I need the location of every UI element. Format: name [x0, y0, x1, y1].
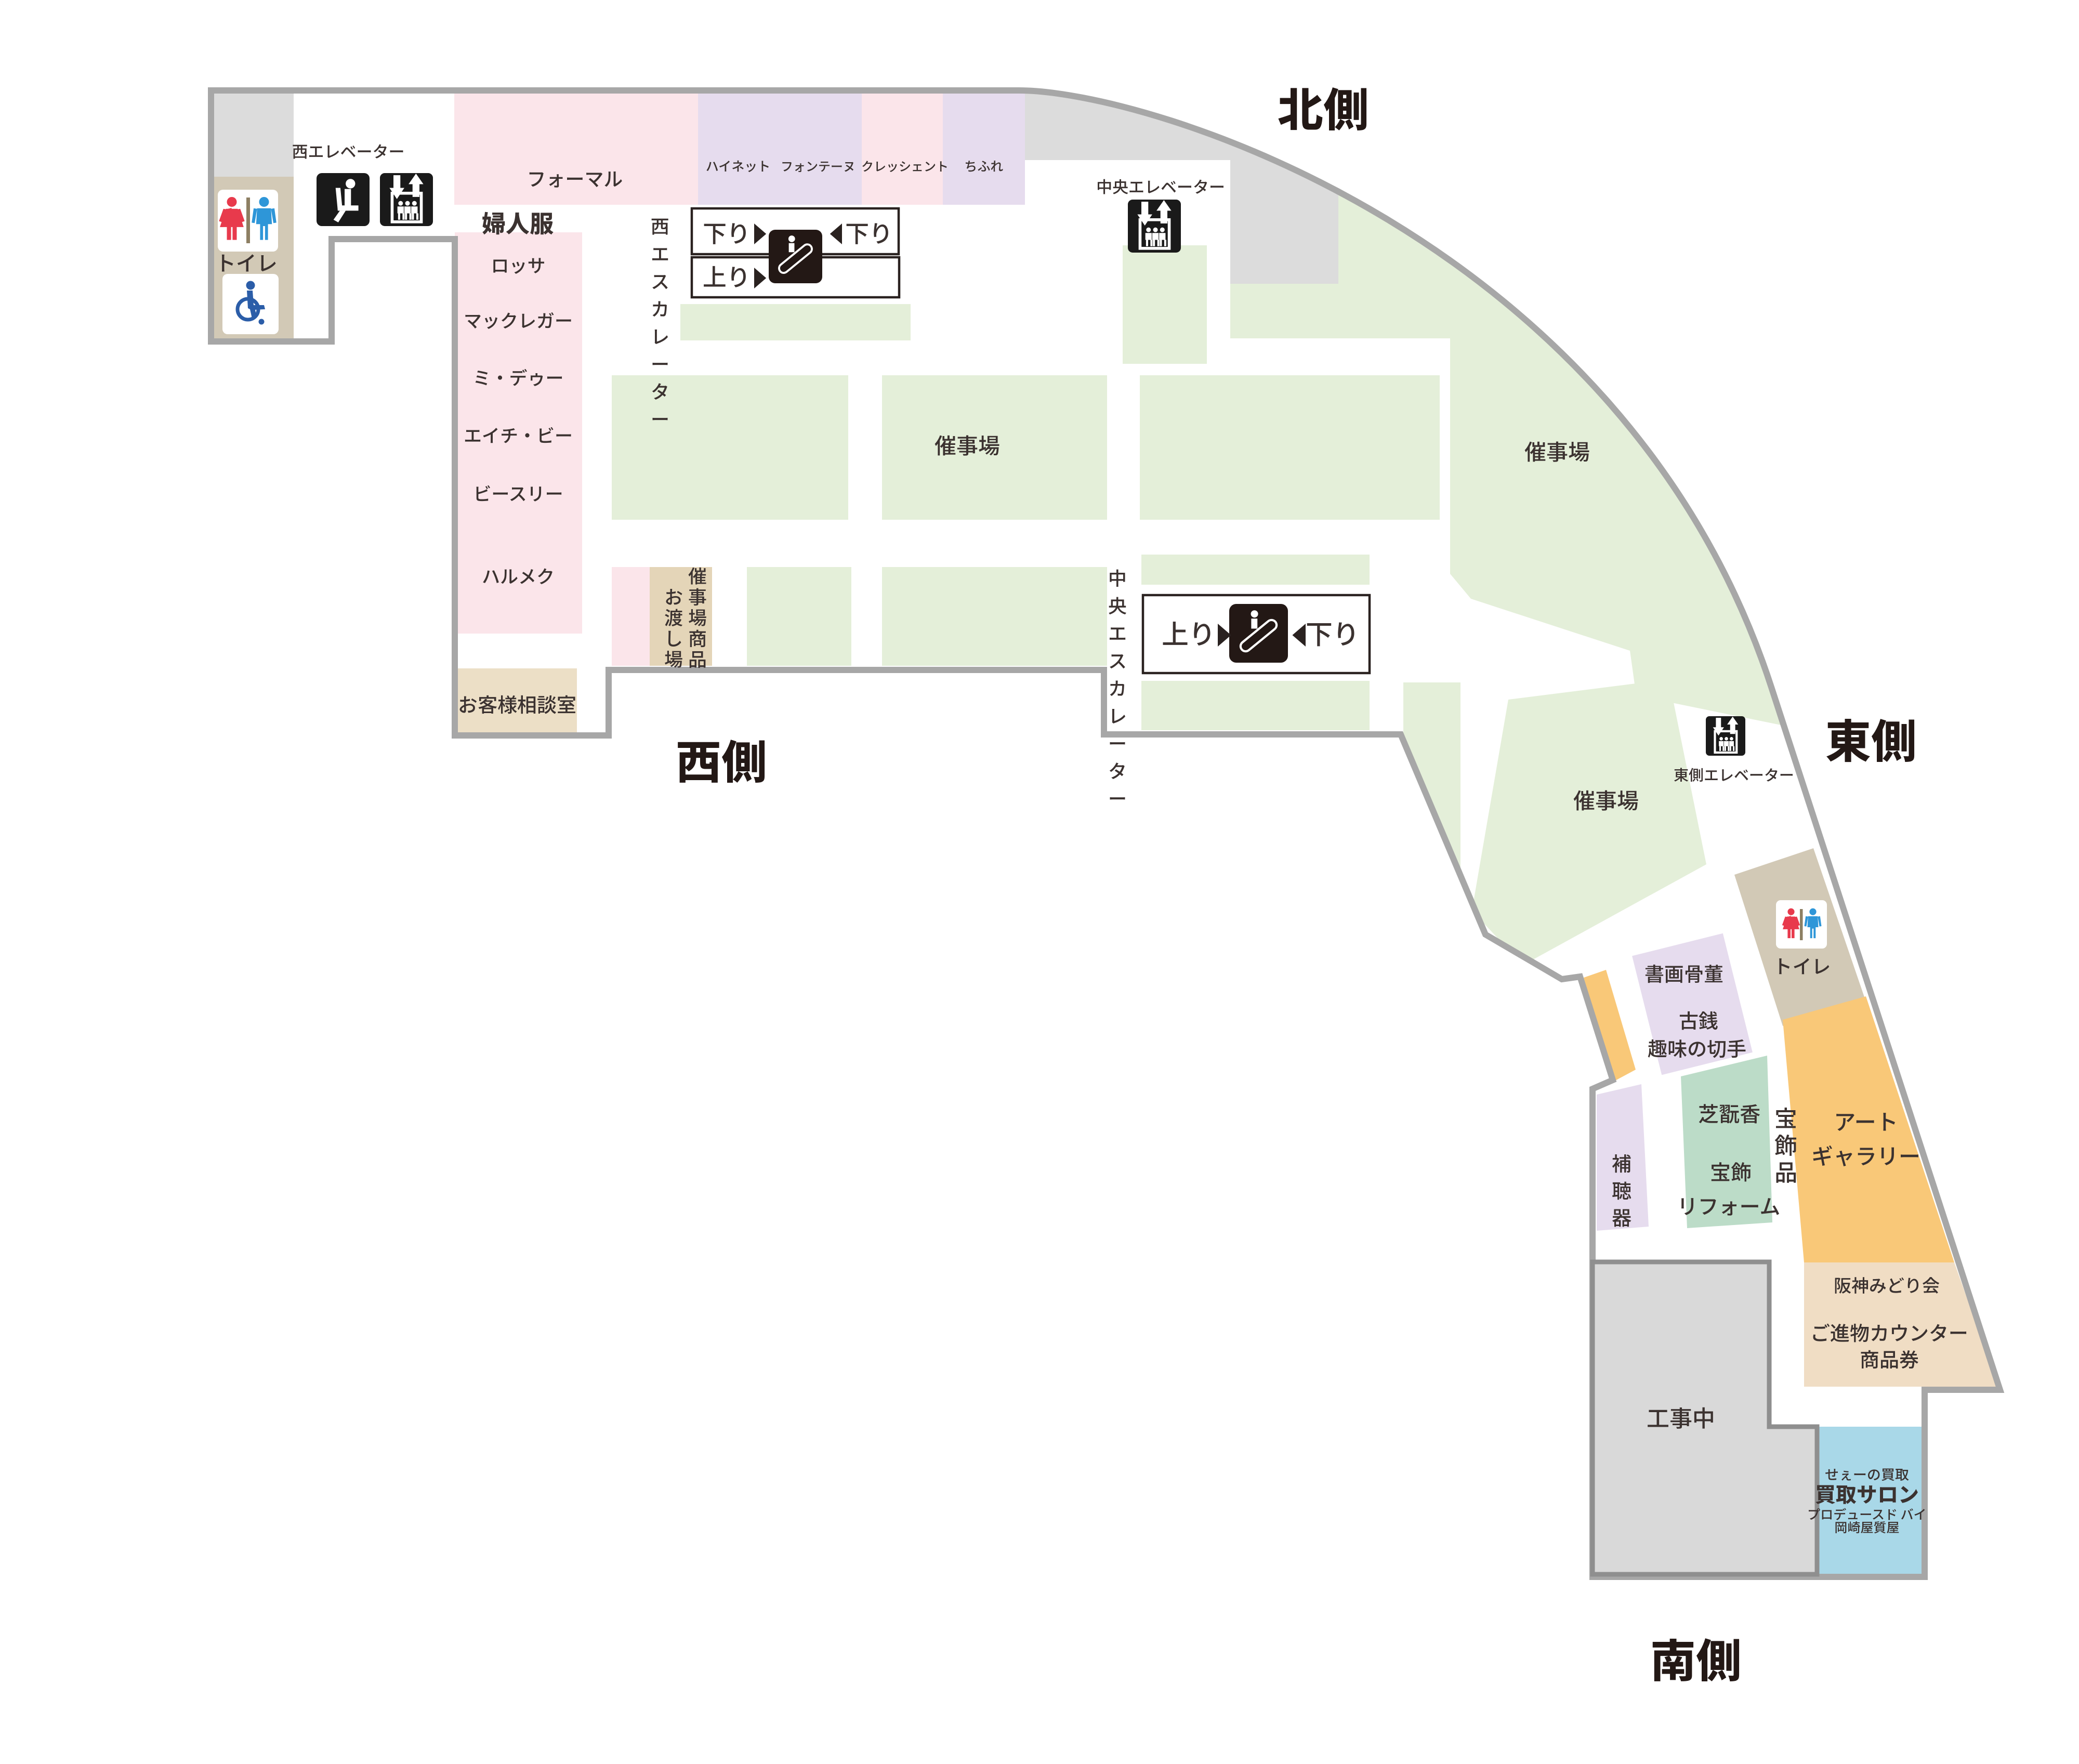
svg-text:下り: 下り — [703, 215, 751, 249]
svg-text:アート: アート — [1834, 1105, 1898, 1137]
svg-text:カ: カ — [651, 295, 669, 322]
svg-text:下り: 下り — [845, 215, 893, 249]
svg-text:品: 品 — [688, 645, 707, 672]
svg-text:ちふれ: ちふれ — [964, 156, 1003, 175]
svg-text:商品券: 商品券 — [1860, 1344, 1919, 1373]
svg-text:東側: 東側 — [1825, 705, 1917, 771]
svg-text:ー: ー — [651, 350, 669, 377]
svg-text:上り: 上り — [1162, 613, 1216, 652]
svg-text:ギャラリー: ギャラリー — [1811, 1139, 1920, 1171]
svg-text:婦人服: 婦人服 — [482, 205, 554, 240]
svg-text:書画骨董: 書画骨董 — [1644, 958, 1723, 987]
svg-text:お客様相談室: お客様相談室 — [458, 689, 576, 718]
svg-text:西側: 西側 — [676, 726, 767, 792]
svg-text:芝翫香: 芝翫香 — [1698, 1098, 1760, 1128]
svg-text:ス: ス — [651, 267, 669, 294]
svg-text:レ: レ — [651, 322, 669, 349]
svg-text:催事場: 催事場 — [1573, 784, 1639, 815]
svg-text:古銭: 古銭 — [1679, 1005, 1718, 1034]
svg-text:南側: 南側 — [1650, 1625, 1742, 1691]
svg-text:フォーマル: フォーマル — [527, 164, 623, 192]
svg-text:カ: カ — [1108, 674, 1127, 701]
svg-text:マックレガー: マックレガー — [464, 307, 573, 333]
svg-text:リフォーム: リフォーム — [1677, 1190, 1781, 1220]
svg-text:場: 場 — [664, 645, 683, 672]
svg-text:トイレ: トイレ — [1773, 951, 1831, 979]
svg-text:工事中: 工事中 — [1647, 1400, 1715, 1433]
svg-text:岡崎屋質屋: 岡崎屋質屋 — [1834, 1518, 1899, 1536]
svg-text:補: 補 — [1612, 1148, 1631, 1177]
svg-text:阪神みどり会: 阪神みどり会 — [1834, 1272, 1940, 1297]
svg-text:トイレ: トイレ — [215, 247, 278, 277]
svg-text:央: 央 — [1108, 591, 1127, 618]
svg-text:西: 西 — [651, 212, 669, 239]
svg-text:フォンテーヌ: フォンテーヌ — [781, 156, 856, 175]
svg-text:器: 器 — [1612, 1202, 1631, 1231]
svg-text:上り: 上り — [703, 259, 751, 293]
svg-text:宝飾: 宝飾 — [1710, 1156, 1752, 1186]
svg-text:エ: エ — [1108, 619, 1127, 646]
svg-text:エイチ・ビー: エイチ・ビー — [464, 422, 573, 448]
svg-text:ス: ス — [1108, 647, 1127, 674]
svg-text:催事場: 催事場 — [935, 429, 1000, 460]
svg-text:レ: レ — [1108, 702, 1127, 729]
svg-text:品: 品 — [1774, 1154, 1797, 1188]
svg-text:ビースリー: ビースリー — [473, 480, 563, 506]
svg-text:ミ・デゥー: ミ・デゥー — [472, 364, 563, 390]
svg-text:東側エレベーター: 東側エレベーター — [1674, 763, 1794, 785]
svg-text:買取サロン: 買取サロン — [1815, 1478, 1919, 1508]
svg-text:ハルメク: ハルメク — [482, 562, 555, 589]
svg-text:中央エレベーター: 中央エレベーター — [1096, 174, 1225, 198]
svg-text:ご進物カウンター: ご進物カウンター — [1810, 1318, 1968, 1346]
svg-text:ハイネット: ハイネット — [706, 156, 771, 175]
svg-text:タ: タ — [651, 377, 669, 404]
svg-text:西エレベーター: 西エレベーター — [292, 139, 405, 162]
svg-text:中: 中 — [1108, 564, 1127, 591]
svg-text:ー: ー — [1108, 784, 1127, 811]
svg-text:ー: ー — [1108, 729, 1127, 756]
svg-text:北側: 北側 — [1278, 74, 1369, 140]
svg-text:タ: タ — [1108, 757, 1127, 784]
svg-text:趣味の切手: 趣味の切手 — [1648, 1033, 1746, 1062]
svg-text:エ: エ — [651, 240, 669, 267]
svg-text:クレッシェント: クレッシェント — [861, 156, 949, 175]
svg-text:ロッサ: ロッサ — [491, 252, 545, 278]
svg-text:ー: ー — [651, 405, 669, 432]
svg-text:催事場: 催事場 — [1524, 435, 1590, 467]
svg-text:下り: 下り — [1306, 613, 1360, 652]
svg-text:聴: 聴 — [1612, 1175, 1631, 1204]
